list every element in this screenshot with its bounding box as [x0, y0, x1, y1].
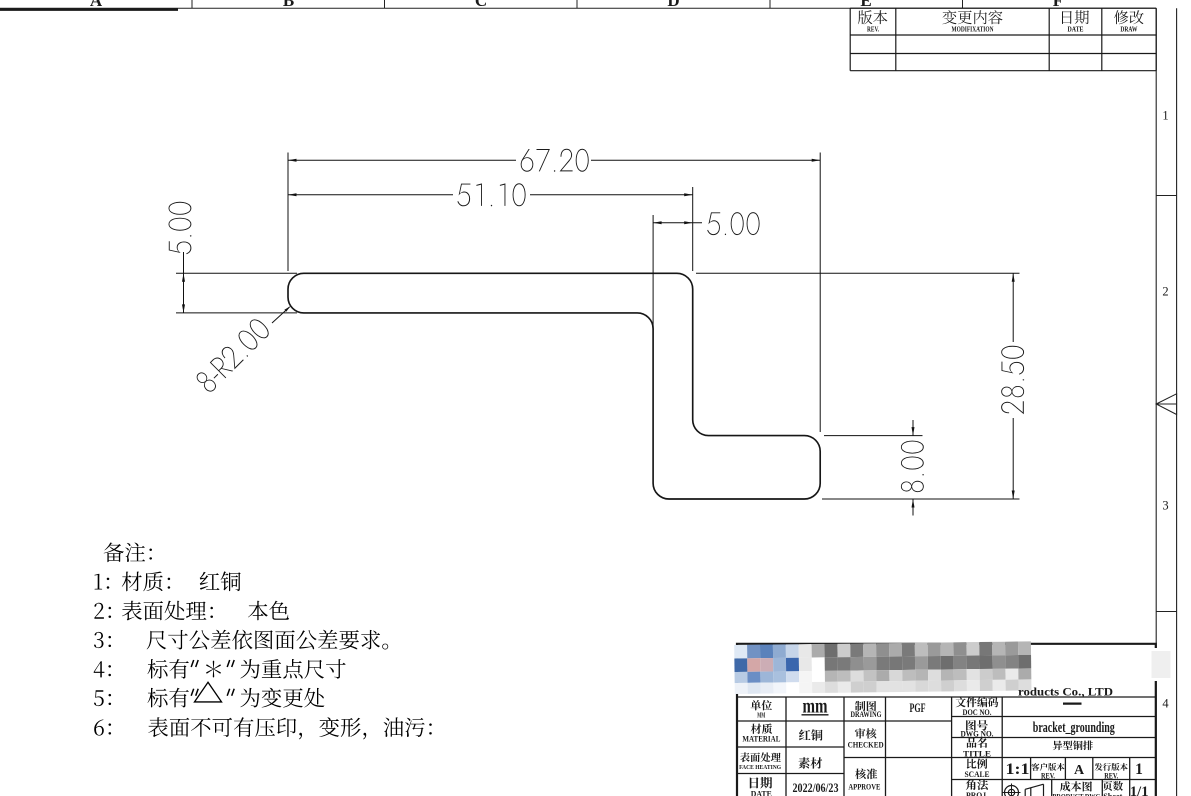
- svg-text:bracket_grounding: bracket_grounding: [1033, 720, 1116, 736]
- svg-text:D: D: [667, 0, 679, 10]
- svg-text:TITLE: TITLE: [963, 750, 992, 759]
- svg-text:roducts Co., LTD: roducts Co., LTD: [1018, 685, 1113, 699]
- svg-text:REV.: REV.: [1104, 771, 1118, 780]
- svg-text:MATERIAL: MATERIAL: [742, 735, 780, 744]
- svg-text:1/1: 1/1: [1130, 784, 1149, 796]
- svg-text:A: A: [90, 0, 103, 10]
- svg-text:1:1: 1:1: [1006, 761, 1030, 778]
- svg-text:APPROVE: APPROVE: [848, 783, 880, 792]
- svg-text:A: A: [1074, 763, 1085, 778]
- svg-text:MM: MM: [757, 711, 765, 719]
- svg-text:PROJ.: PROJ.: [966, 791, 988, 796]
- svg-text:REV.: REV.: [867, 25, 879, 34]
- svg-text:4: 4: [1162, 697, 1169, 711]
- svg-text:1: 1: [1162, 109, 1168, 123]
- svg-text:PGF: PGF: [910, 701, 926, 715]
- svg-text:3: 3: [1162, 499, 1168, 513]
- svg-text:B: B: [283, 0, 294, 10]
- svg-text:SCALE: SCALE: [965, 770, 990, 779]
- svg-text:mm: mm: [803, 694, 828, 718]
- svg-text:2022/06/23: 2022/06/23: [793, 781, 839, 795]
- svg-text:PRODUCT DWG: PRODUCT DWG: [1053, 792, 1101, 796]
- svg-text:FACE HEATING: FACE HEATING: [739, 764, 781, 771]
- svg-text:DOC NO.: DOC NO.: [963, 708, 992, 717]
- svg-text:CHECKED: CHECKED: [848, 740, 884, 749]
- svg-text:DATE: DATE: [751, 790, 773, 796]
- svg-text:DRAW: DRAW: [1120, 25, 1137, 34]
- svg-text:DWG NO.: DWG NO.: [961, 730, 994, 739]
- svg-text:DATE: DATE: [1068, 25, 1084, 34]
- svg-text:Sheet: Sheet: [1103, 792, 1122, 796]
- svg-text:MODIFIXATION: MODIFIXATION: [952, 25, 994, 34]
- svg-text:2: 2: [1162, 285, 1168, 299]
- svg-text:C: C: [475, 0, 487, 10]
- svg-text:1: 1: [1135, 761, 1143, 778]
- svg-text:REV.: REV.: [1041, 771, 1055, 780]
- svg-text:DRAWING: DRAWING: [851, 710, 882, 719]
